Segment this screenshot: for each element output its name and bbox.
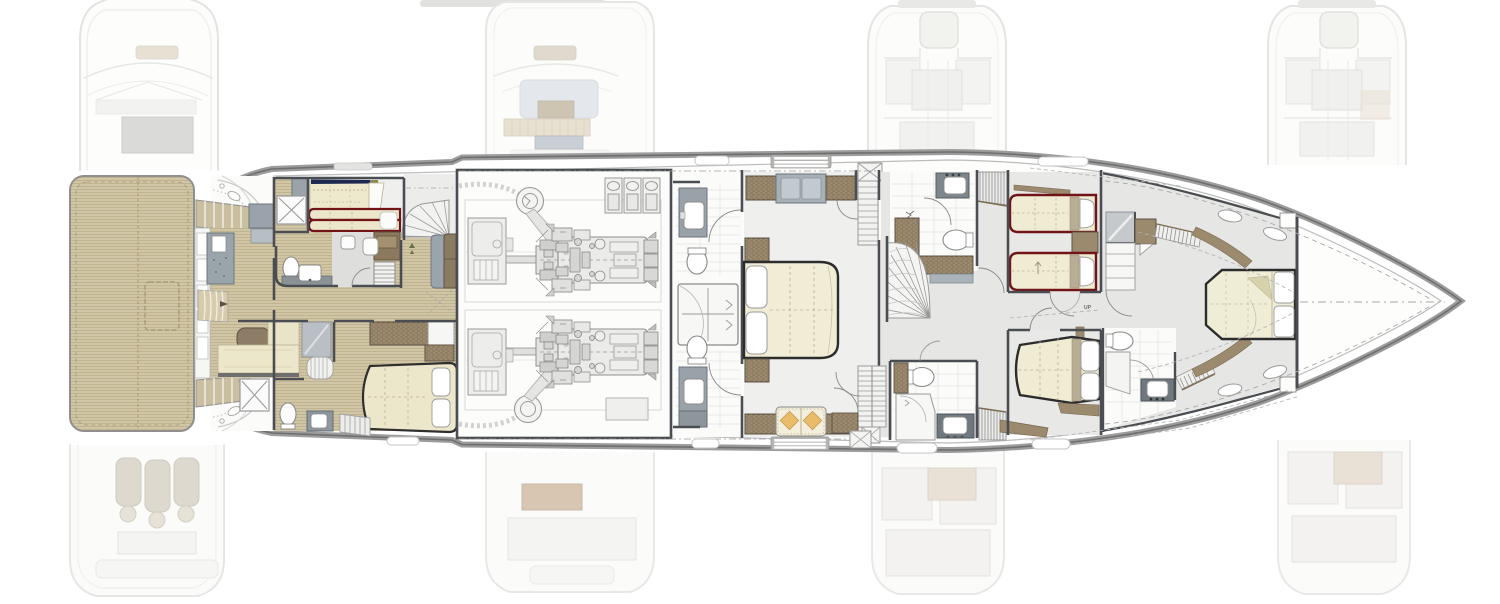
svg-text:UP: UP	[1084, 305, 1092, 311]
